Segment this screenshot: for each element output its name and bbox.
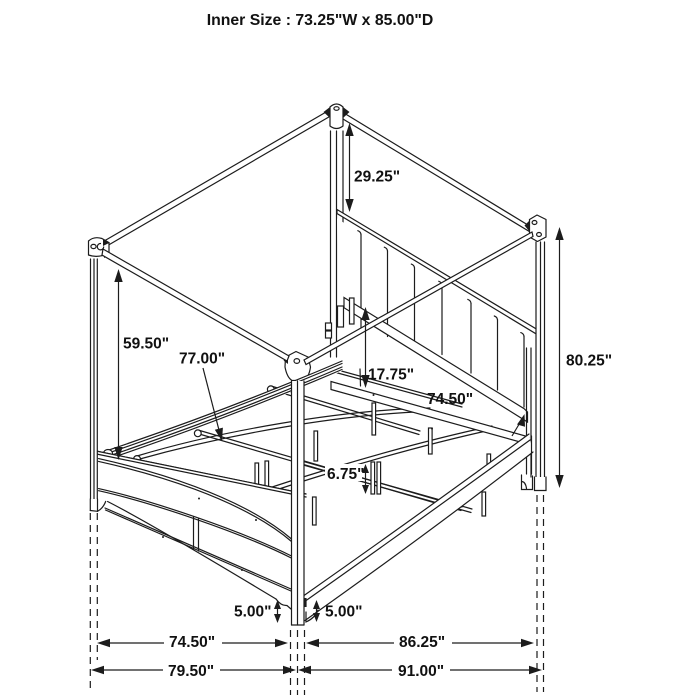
svg-text:91.00": 91.00" — [398, 663, 444, 680]
svg-text:80.25": 80.25" — [566, 353, 612, 370]
svg-text:77.00": 77.00" — [179, 351, 225, 368]
svg-text:59.50": 59.50" — [123, 336, 169, 353]
svg-text:74.50": 74.50" — [169, 634, 215, 651]
svg-text:86.25": 86.25" — [399, 634, 445, 651]
svg-text:17.75": 17.75" — [368, 367, 414, 384]
svg-text:Inner Size : 73.25"W x 85.00"D: Inner Size : 73.25"W x 85.00"D — [207, 12, 434, 29]
svg-text:5.00": 5.00" — [234, 604, 272, 621]
svg-text:29.25": 29.25" — [354, 169, 400, 186]
svg-text:5.00": 5.00" — [325, 604, 363, 621]
svg-text:79.50": 79.50" — [168, 663, 214, 680]
svg-text:6.75": 6.75" — [327, 466, 365, 483]
svg-text:74.50": 74.50" — [427, 391, 473, 408]
